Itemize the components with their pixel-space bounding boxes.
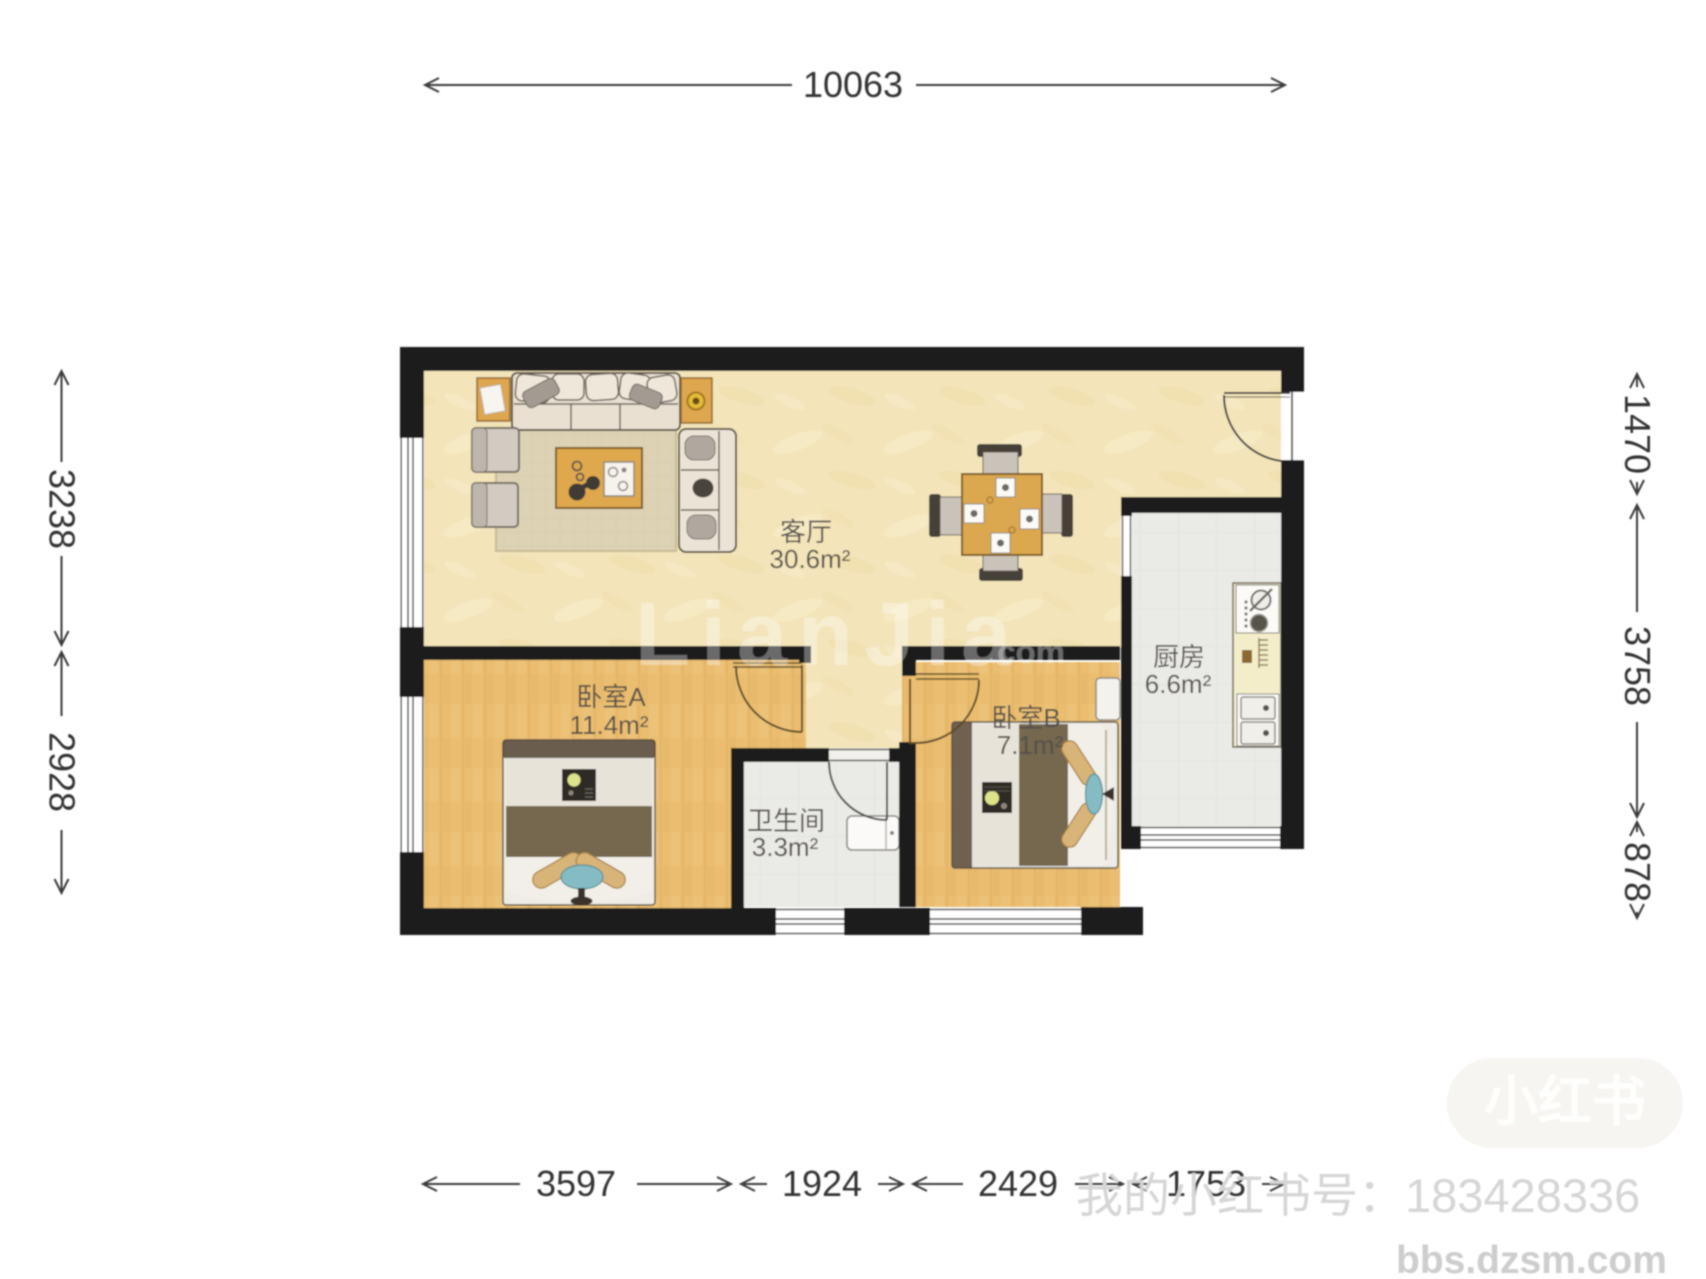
svg-text:1470: 1470 bbox=[1617, 394, 1658, 474]
svg-text:30.6m²: 30.6m² bbox=[770, 544, 851, 574]
svg-text:LianJia: LianJia bbox=[635, 585, 1022, 685]
svg-text:小红书: 小红书 bbox=[1484, 1072, 1646, 1132]
svg-text:7.1m²: 7.1m² bbox=[997, 730, 1064, 760]
svg-text:11.4m²: 11.4m² bbox=[570, 710, 649, 740]
svg-text:3597: 3597 bbox=[536, 1163, 616, 1204]
svg-text:卧室B: 卧室B bbox=[991, 703, 1060, 733]
svg-text:.com: .com bbox=[988, 633, 1065, 670]
svg-text:厨房: 厨房 bbox=[1153, 642, 1205, 672]
svg-text:我的小红书号：183428336: 我的小红书号：183428336 bbox=[1076, 1169, 1640, 1222]
svg-text:3238: 3238 bbox=[42, 469, 83, 549]
svg-text:2429: 2429 bbox=[978, 1163, 1058, 1204]
svg-text:10063: 10063 bbox=[803, 64, 903, 105]
svg-text:卧室A: 卧室A bbox=[576, 682, 646, 712]
svg-text:1924: 1924 bbox=[782, 1163, 862, 1204]
svg-text:客厅: 客厅 bbox=[780, 517, 832, 547]
svg-text:3.3m²: 3.3m² bbox=[752, 832, 819, 862]
svg-text:3758: 3758 bbox=[1617, 626, 1658, 706]
svg-text:878: 878 bbox=[1617, 842, 1658, 902]
svg-text:6.6m²: 6.6m² bbox=[1145, 669, 1212, 699]
svg-text:2928: 2928 bbox=[42, 732, 83, 812]
svg-text:bbs.dzsm.com: bbs.dzsm.com bbox=[1396, 1239, 1667, 1279]
